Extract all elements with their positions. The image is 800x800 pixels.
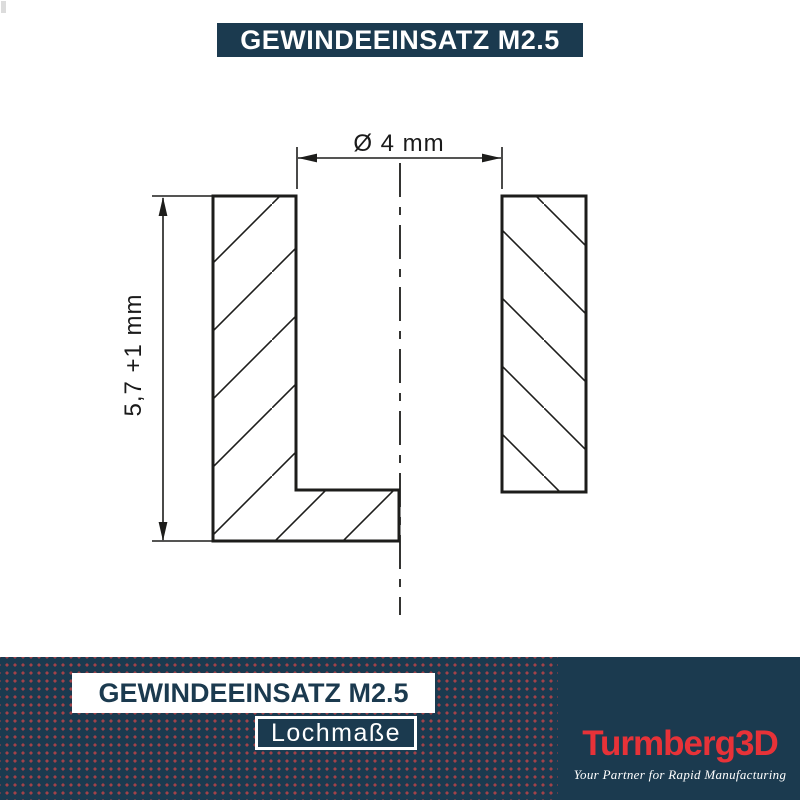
- footer-band: GEWINDEEINSATZ M2.5 Lochmaße Turmberg3D …: [0, 657, 800, 800]
- footer-subtitle: Lochmaße: [271, 719, 401, 748]
- depth-dimension-label: 5,7 +1 mm: [120, 293, 147, 416]
- brand-tagline: Your Partner for Rapid Manufacturing: [560, 767, 800, 783]
- brand-logo: Turmberg3D Your Partner for Rapid Manufa…: [560, 726, 800, 783]
- footer-title: GEWINDEEINSATZ M2.5: [98, 678, 408, 709]
- right-section-profile: [502, 196, 586, 492]
- diameter-arrow-right: [482, 154, 501, 163]
- footer-title-box: GEWINDEEINSATZ M2.5: [72, 673, 435, 713]
- footer-subtitle-box: Lochmaße: [255, 716, 417, 750]
- diameter-arrow-left: [298, 154, 317, 163]
- depth-arrow-top: [159, 197, 168, 216]
- diameter-dimension-label: Ø 4 mm: [353, 130, 444, 157]
- depth-arrow-bottom: [159, 522, 168, 541]
- brand-name: Turmberg3D: [560, 726, 800, 762]
- left-section-profile: [213, 196, 399, 541]
